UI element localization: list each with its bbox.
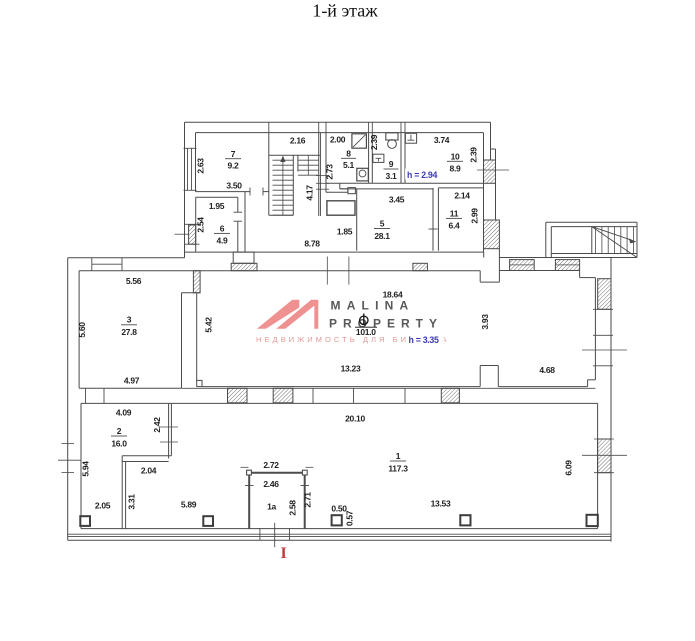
svg-text:8.9: 8.9 <box>450 164 461 174</box>
svg-text:6.09: 6.09 <box>564 460 574 476</box>
svg-text:5.89: 5.89 <box>181 500 197 510</box>
svg-text:2.73: 2.73 <box>325 164 335 180</box>
svg-text:28.1: 28.1 <box>374 231 390 241</box>
svg-text:27.8: 27.8 <box>121 327 137 337</box>
svg-text:6: 6 <box>220 224 225 234</box>
svg-text:18.64: 18.64 <box>383 290 403 300</box>
svg-text:3.1: 3.1 <box>386 171 397 181</box>
svg-text:9.2: 9.2 <box>228 161 239 171</box>
svg-text:5.42: 5.42 <box>204 317 214 333</box>
svg-text:2.04: 2.04 <box>141 466 157 476</box>
svg-text:5.56: 5.56 <box>126 276 142 286</box>
svg-text:7: 7 <box>231 149 236 159</box>
svg-text:PROPERTY: PROPERTY <box>329 317 443 331</box>
svg-text:5.94: 5.94 <box>81 461 91 477</box>
svg-text:2.46: 2.46 <box>263 479 279 489</box>
svg-text:101.0: 101.0 <box>356 327 376 337</box>
svg-text:8: 8 <box>346 149 351 159</box>
svg-text:1.85: 1.85 <box>337 227 353 237</box>
svg-text:5.60: 5.60 <box>77 322 87 338</box>
svg-text:16.0: 16.0 <box>111 439 127 449</box>
svg-text:2.00: 2.00 <box>330 135 346 145</box>
svg-text:2.58: 2.58 <box>288 500 298 516</box>
svg-text:20.10: 20.10 <box>345 414 365 424</box>
svg-text:MALINA: MALINA <box>331 299 415 313</box>
svg-text:10: 10 <box>451 152 460 162</box>
svg-text:117.3: 117.3 <box>388 464 408 474</box>
svg-text:2.72: 2.72 <box>263 460 279 470</box>
svg-text:4.97: 4.97 <box>124 376 140 386</box>
svg-text:3.93: 3.93 <box>480 314 490 330</box>
svg-text:1a: 1a <box>267 502 276 512</box>
svg-text:2.14: 2.14 <box>454 191 470 201</box>
svg-text:6.4: 6.4 <box>449 221 460 231</box>
svg-text:2.39: 2.39 <box>369 134 379 150</box>
svg-text:2: 2 <box>117 426 122 436</box>
svg-text:4.09: 4.09 <box>116 408 132 418</box>
svg-text:9: 9 <box>389 159 394 169</box>
svg-text:2.05: 2.05 <box>95 501 111 511</box>
svg-text:1: 1 <box>396 451 401 461</box>
svg-text:3.31: 3.31 <box>127 494 137 510</box>
svg-text:3.45: 3.45 <box>389 195 405 205</box>
svg-text:13.53: 13.53 <box>431 499 451 509</box>
svg-text:2.54: 2.54 <box>196 217 206 233</box>
svg-text:3: 3 <box>127 315 132 325</box>
svg-text:h = 2.94: h = 2.94 <box>407 170 438 180</box>
svg-text:2.63: 2.63 <box>196 158 206 174</box>
svg-text:2.16: 2.16 <box>290 136 306 146</box>
svg-text:4.9: 4.9 <box>217 236 228 246</box>
svg-text:0.57: 0.57 <box>345 510 355 526</box>
svg-text:1.95: 1.95 <box>209 201 225 211</box>
svg-text:2.99: 2.99 <box>470 208 480 224</box>
svg-text:8.78: 8.78 <box>304 239 320 249</box>
svg-text:5: 5 <box>380 219 385 229</box>
svg-text:h = 3.35: h = 3.35 <box>409 335 440 345</box>
svg-text:5.1: 5.1 <box>343 160 354 170</box>
svg-text:4.17: 4.17 <box>305 185 315 201</box>
svg-text:I: I <box>281 545 287 562</box>
svg-text:2.42: 2.42 <box>152 417 162 433</box>
svg-text:2.39: 2.39 <box>469 147 479 163</box>
svg-text:11: 11 <box>450 209 459 219</box>
svg-text:3.74: 3.74 <box>434 135 450 145</box>
svg-text:3.50: 3.50 <box>226 181 242 191</box>
svg-text:13.23: 13.23 <box>341 364 361 374</box>
svg-text:2.71: 2.71 <box>303 492 313 508</box>
svg-text:4.68: 4.68 <box>539 365 555 375</box>
svg-text:1-й этаж: 1-й этаж <box>312 1 378 21</box>
